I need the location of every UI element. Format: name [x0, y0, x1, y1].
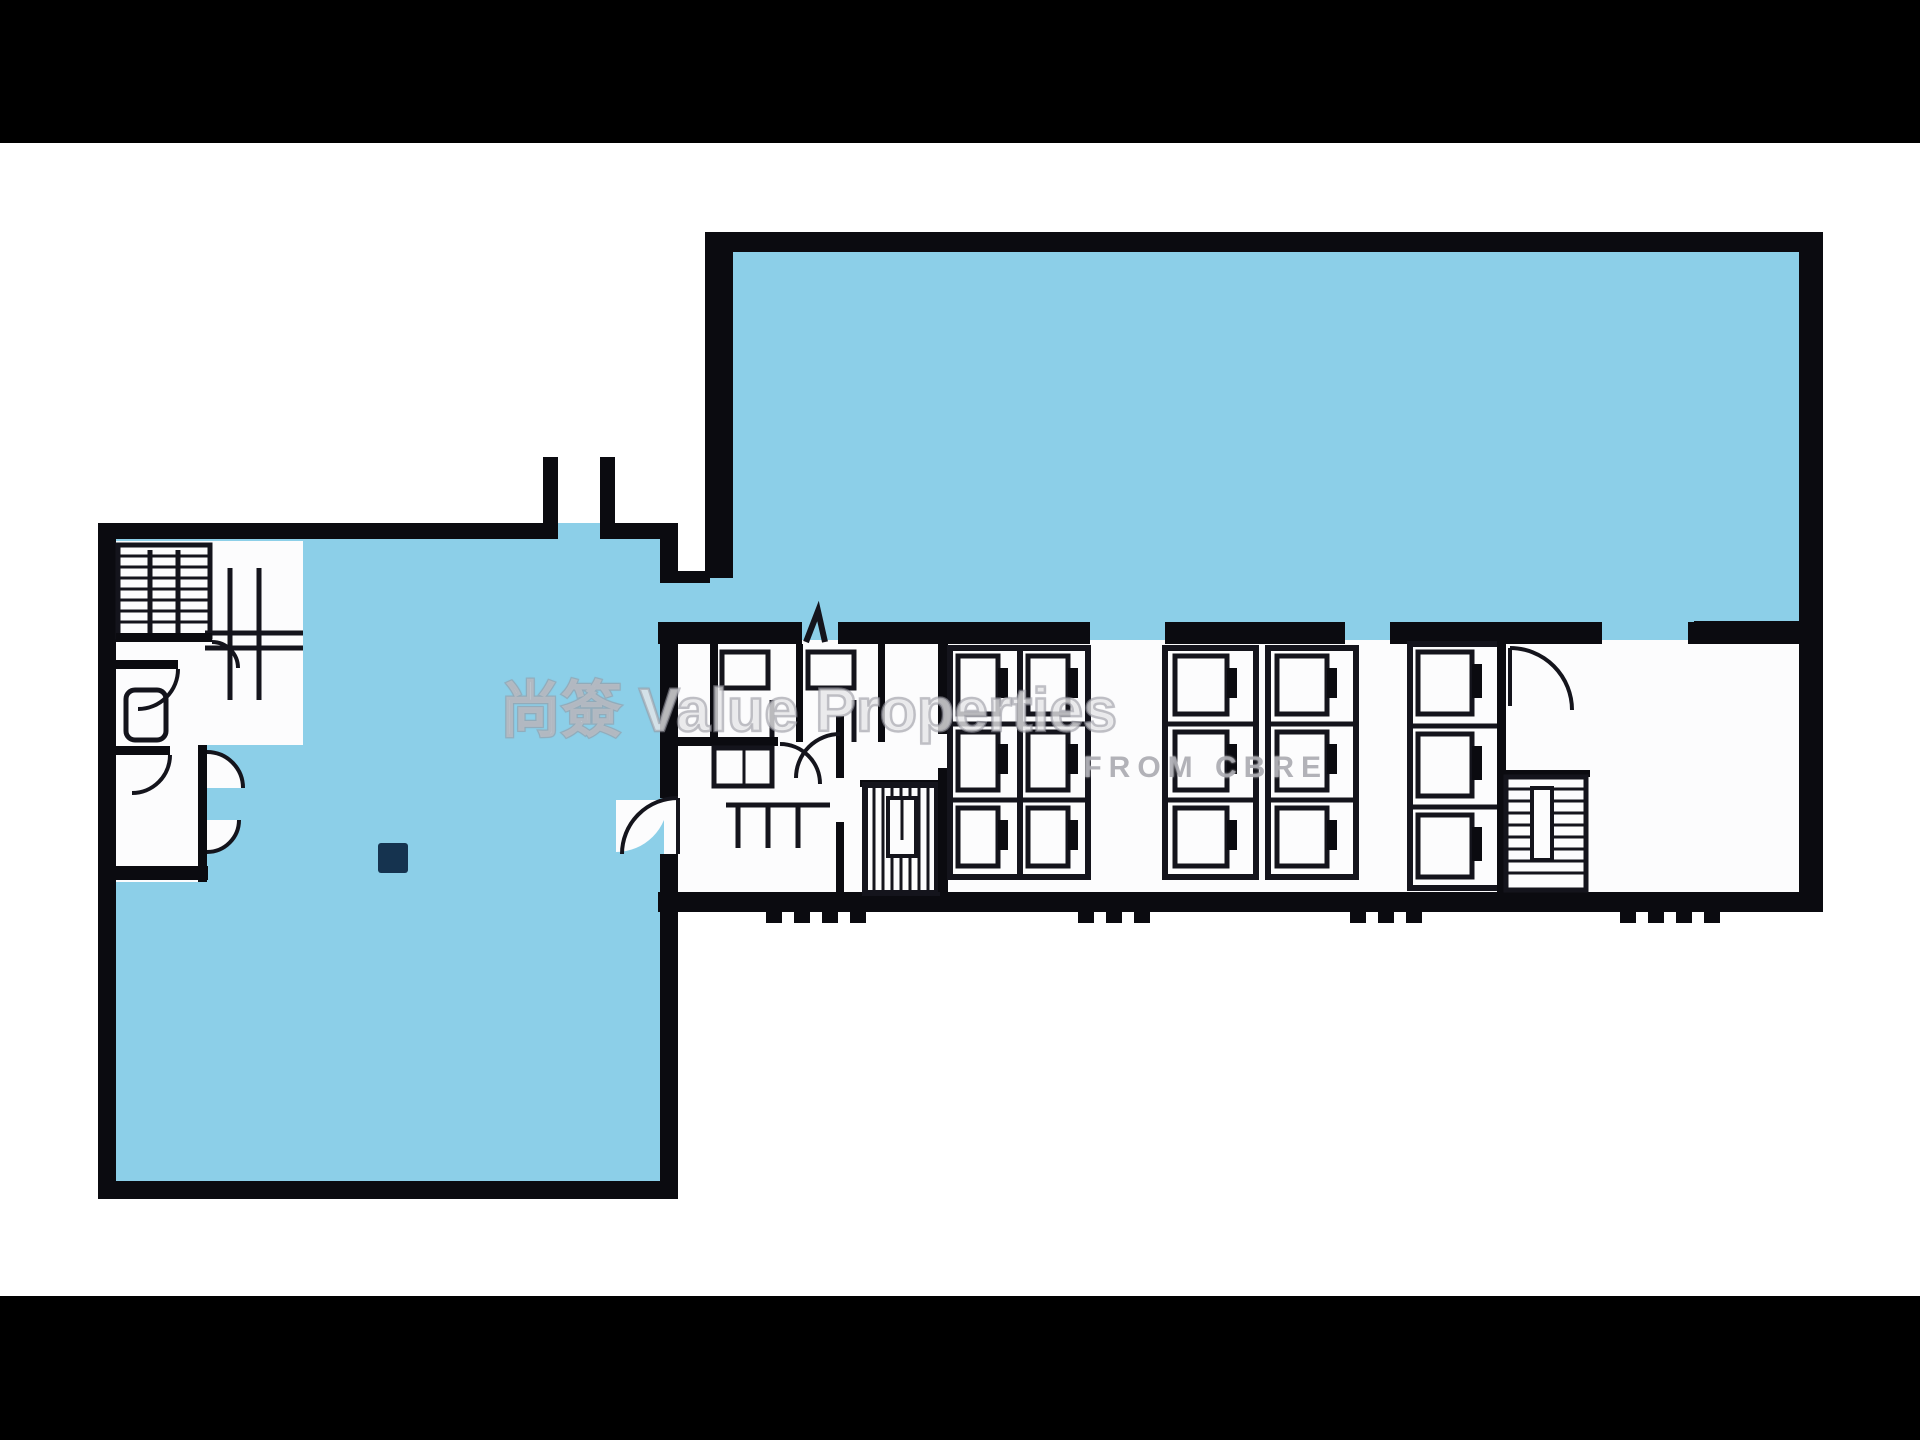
letterbox-bottom: [0, 1296, 1920, 1440]
column-marker: [378, 843, 408, 873]
door-ticks: [766, 912, 1720, 923]
stair-landing-wall: [116, 633, 212, 642]
left-wing-notch-stub-a: [543, 457, 558, 539]
core-top-wall-2: [838, 622, 1090, 644]
core-top-wall-1: [658, 622, 802, 644]
service-partition-1: [116, 660, 178, 669]
core-top-wall-4: [1390, 622, 1602, 644]
main-hall-right-wall: [1799, 232, 1823, 912]
floor-plan-svg: [0, 0, 1920, 1440]
service-partition-2: [116, 746, 170, 755]
screenshot-root: 尚簽 Value Properties FROM CBRE: [0, 0, 1920, 1440]
left-wing-left-wall: [98, 523, 116, 1199]
core-top-wall-3: [1165, 622, 1345, 644]
link-top-wall: [660, 571, 710, 583]
core-bottom-wall: [658, 892, 1823, 912]
left-wing-top-wall-a: [98, 523, 558, 539]
main-hall-top-wall: [705, 232, 1823, 252]
main-hall-area: [705, 232, 1823, 648]
left-wing-bottom-wall: [98, 1181, 678, 1199]
service-bottom-wall: [116, 866, 208, 880]
main-hall-left-wall: [705, 232, 733, 578]
left-wing-right-wall-upper: [660, 622, 678, 798]
core-top-wall-5: [1688, 622, 1801, 644]
letterbox-top: [0, 0, 1920, 143]
left-wing-notch-stub-b: [600, 457, 615, 539]
service-east-wall: [198, 745, 207, 882]
